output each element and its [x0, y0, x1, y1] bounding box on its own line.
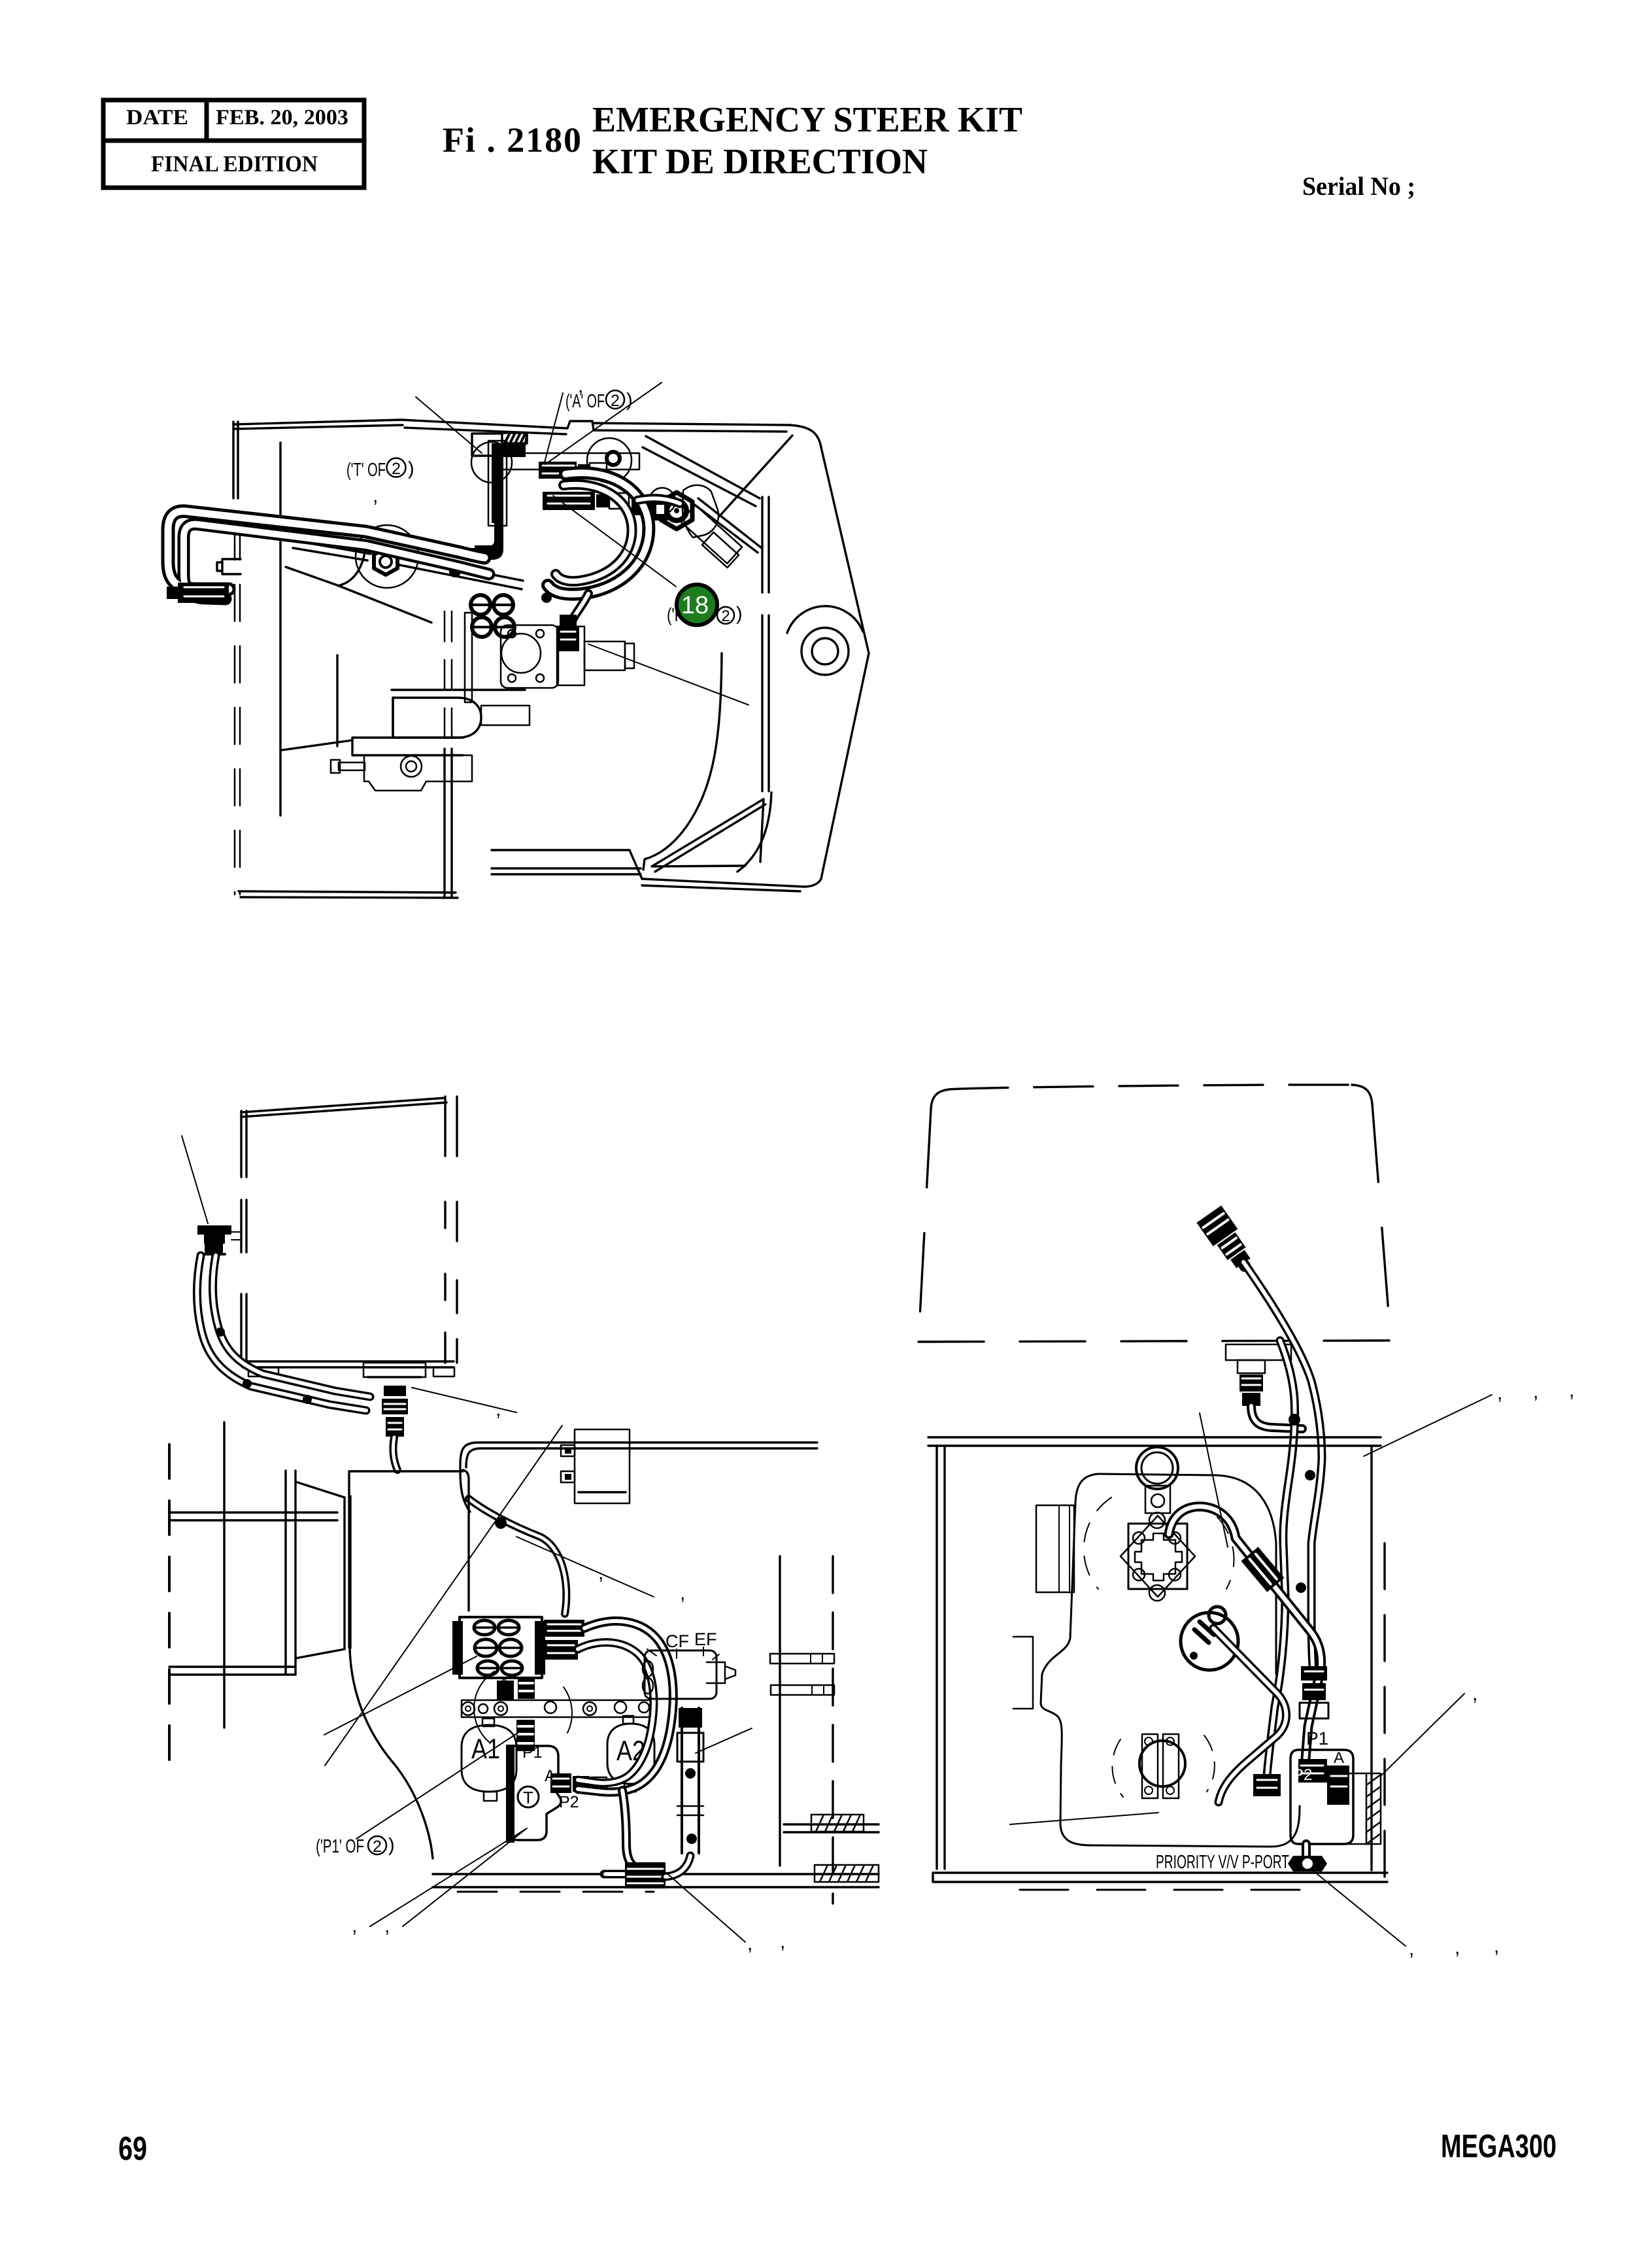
- svg-text:FINAL EDITION: FINAL EDITION: [151, 151, 318, 177]
- svg-text:2: 2: [721, 607, 730, 625]
- svg-text:A: A: [1334, 1749, 1344, 1767]
- svg-text:,: ,: [1472, 1683, 1477, 1705]
- svg-text:,: ,: [1455, 1937, 1460, 1958]
- svg-text:CF: CF: [666, 1631, 689, 1651]
- svg-text:2: 2: [392, 460, 401, 478]
- svg-text:A: A: [499, 1675, 509, 1692]
- svg-text:,: ,: [384, 1915, 390, 1937]
- svg-text:T: T: [523, 1788, 533, 1807]
- svg-text:FEB. 20, 2003: FEB. 20, 2003: [216, 106, 348, 129]
- svg-text:,: ,: [1409, 1938, 1414, 1960]
- svg-text:,: ,: [373, 485, 378, 507]
- svg-text:PRIORITY V/V P-PORT: PRIORITY V/V P-PORT: [1156, 1852, 1289, 1873]
- svg-text:,: ,: [1533, 1381, 1538, 1403]
- svg-text:('P1' OF: ('P1' OF: [316, 1836, 364, 1857]
- svg-text:69: 69: [118, 2130, 147, 2167]
- svg-text:P2: P2: [1293, 1766, 1312, 1784]
- svg-text:,: ,: [747, 1933, 752, 1955]
- svg-text:KIT DE DIRECTION: KIT DE DIRECTION: [592, 141, 928, 181]
- svg-text:('T' OF: ('T' OF: [346, 460, 386, 481]
- svg-text:,: ,: [1497, 1382, 1502, 1404]
- svg-text:EF: EF: [694, 1630, 717, 1649]
- svg-text:,: ,: [352, 1915, 357, 1937]
- svg-text:): ): [736, 604, 743, 624]
- svg-text:EMERGENCY STEER KIT: EMERGENCY STEER KIT: [592, 99, 1022, 139]
- svg-text:Fi . 2180: Fi . 2180: [443, 120, 581, 160]
- svg-text:DATE: DATE: [126, 106, 188, 129]
- svg-text:,: ,: [780, 1931, 785, 1953]
- svg-text:): ): [388, 1835, 395, 1856]
- svg-text:2: 2: [611, 392, 620, 410]
- svg-text:P1: P1: [522, 1743, 543, 1762]
- svg-text:,: ,: [1569, 1380, 1574, 1401]
- svg-text:('A' OF: ('A' OF: [565, 391, 605, 412]
- svg-text:,: ,: [680, 1582, 685, 1604]
- svg-text:P2: P2: [559, 1793, 579, 1811]
- svg-text:): ): [626, 390, 633, 411]
- svg-text:18: 18: [681, 592, 709, 619]
- svg-text:Serial No ;: Serial No ;: [1302, 171, 1415, 201]
- svg-text:2: 2: [373, 1837, 382, 1856]
- svg-text:): ): [408, 458, 414, 479]
- svg-text:P1: P1: [1306, 1728, 1328, 1749]
- svg-text:,: ,: [1494, 1936, 1499, 1957]
- svg-text:MEGA300: MEGA300: [1441, 2128, 1557, 2164]
- svg-text:,: ,: [496, 1399, 501, 1420]
- svg-text:,: ,: [598, 1562, 603, 1584]
